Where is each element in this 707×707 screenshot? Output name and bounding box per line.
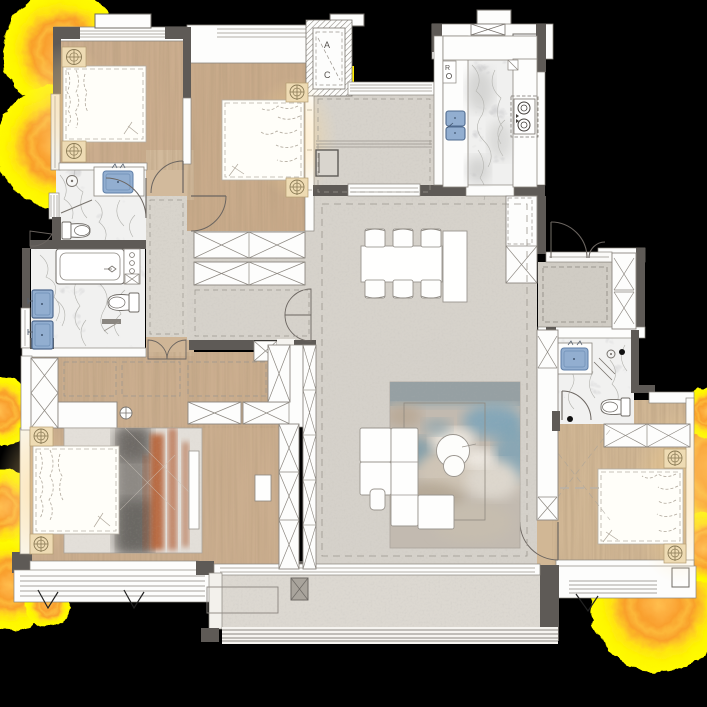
svg-text:R: R — [445, 65, 450, 72]
svg-text:A: A — [324, 40, 330, 50]
svg-text:C: C — [324, 70, 331, 80]
